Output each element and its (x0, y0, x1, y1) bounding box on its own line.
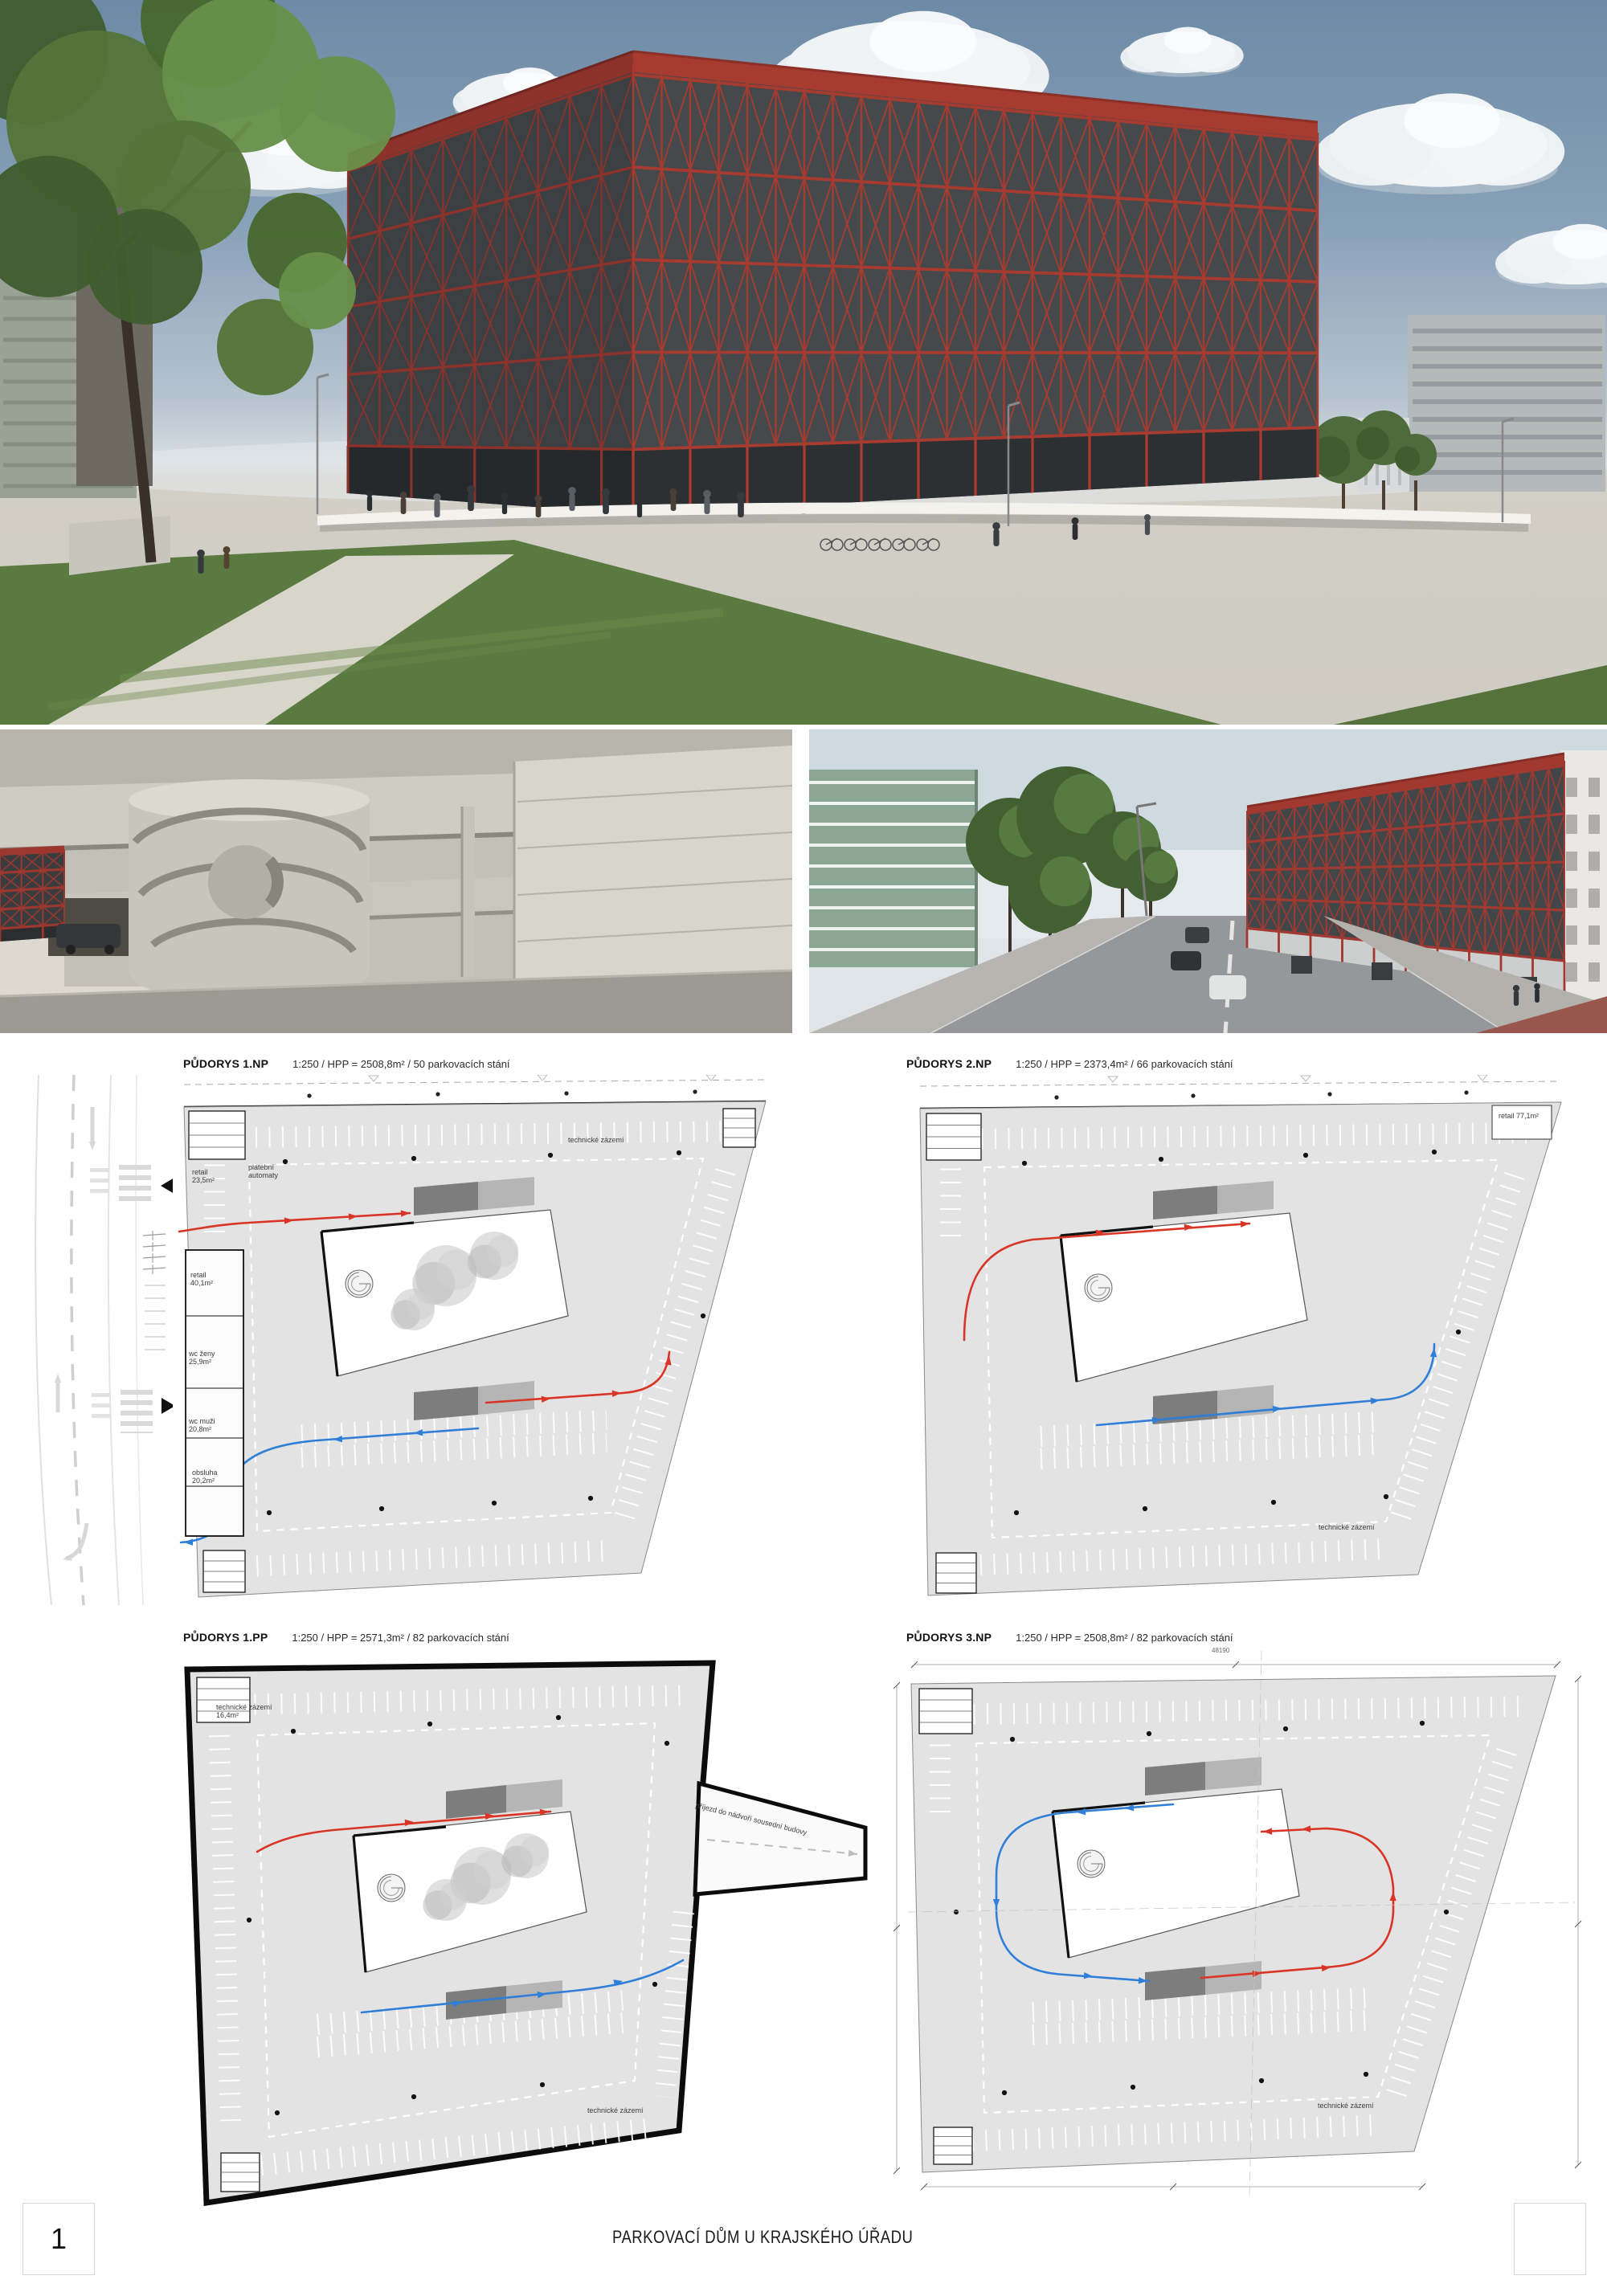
plan-linework (893, 1651, 1581, 2197)
empty-corner-box (1514, 2203, 1586, 2275)
room-label: wc ženy 25,9m² (189, 1350, 237, 1367)
interior-art-shapes (0, 729, 792, 1033)
interior-render (0, 729, 792, 1033)
cloud (1120, 27, 1243, 77)
plan-specs: 1:250 / HPP = 2508,8m² / 82 parkovacích … (1016, 1632, 1233, 1644)
plan-name: PŮDORYS 1.PP (183, 1631, 268, 1644)
room-label: technické zázemí (1319, 1523, 1375, 1531)
plan-drawing-2np (904, 1075, 1575, 1605)
street-render (809, 729, 1607, 1033)
room-label: technické zázemí (568, 1136, 624, 1144)
street-strip-drawing (16, 1075, 173, 1605)
plan-drawing-1pp (173, 1647, 880, 2209)
plan-drawing-3np (884, 1647, 1591, 2201)
plan-title-1pp: PŮDORYS 1.PP 1:250 / HPP = 2571,3m² / 82… (183, 1631, 509, 1644)
plan-linework (187, 1663, 865, 2203)
bicycles (820, 538, 939, 550)
plan-title-1np: PŮDORYS 1.NP 1:250 / HPP = 2508,8m² / 50… (183, 1057, 510, 1070)
plan-specs: 1:250 / HPP = 2508,8m² / 50 parkovacích … (292, 1058, 509, 1070)
plan-linework (920, 1075, 1561, 1595)
hero-art (0, 0, 1607, 725)
room-label: wc muži 20,8m² (189, 1417, 237, 1434)
plan-1pp: technické zázemí 16,4m² příjezd do nádvo… (173, 1647, 880, 2209)
red-lattice-glimpse (0, 847, 64, 942)
dimension-label: 48190 (1212, 1647, 1229, 1654)
plan-specs: 1:250 / HPP = 2571,3m² / 82 parkovacích … (292, 1632, 509, 1644)
cloud (1315, 93, 1564, 194)
plan-name: PŮDORYS 1.NP (183, 1057, 268, 1070)
hero-render (0, 0, 1607, 725)
plan-title-2np: PŮDORYS 2.NP 1:250 / HPP = 2373,4m² / 66… (906, 1057, 1233, 1070)
retail-room (1492, 1105, 1552, 1139)
street-situation-strip (16, 1075, 173, 1605)
room-label: retail 40,1m² (190, 1271, 229, 1288)
plan-3np: 48190 technické zázemí (884, 1647, 1591, 2201)
cloud (1495, 224, 1607, 289)
street-strip-linework (35, 1075, 173, 1605)
plan-name: PŮDORYS 2.NP (906, 1057, 992, 1070)
room-label: retail 77,1m² (1499, 1112, 1540, 1120)
board-title: PARKOVACÍ DŮM U KRAJSKÉHO ÚŘADU (612, 2227, 913, 2248)
plan-name: PŮDORYS 3.NP (906, 1631, 992, 1644)
plan-2np: retail 77,1m² technické zázemí (904, 1075, 1575, 1605)
plan-1np: technické zázemí retail 23,5m² platební … (173, 1075, 771, 1605)
canopy (317, 502, 1531, 532)
green-glass-building (809, 770, 978, 967)
plan-linework (179, 1075, 766, 1597)
street-art (809, 729, 1607, 1033)
page-number-box: 1 (22, 2203, 95, 2275)
parking-house-building (348, 51, 1318, 514)
ground-plaza (0, 516, 1607, 725)
plan-title-3np: PŮDORYS 3.NP 1:250 / HPP = 2508,8m² / 82… (906, 1631, 1233, 1644)
street-art-shapes (809, 729, 1607, 1033)
spiral-ramp (129, 779, 370, 1004)
room-label: technické zázemí (1318, 2102, 1374, 2110)
presentation-board: { "board": { "footer_title": "PARKOVACÍ … (0, 0, 1607, 2296)
room-label: technické zázemí (587, 2106, 644, 2114)
page-number: 1 (51, 2222, 67, 2256)
interior-art (0, 729, 792, 1033)
room-label: retail 23,5m² (192, 1168, 227, 1185)
room-label: platební automaty (248, 1163, 285, 1180)
room-label: obsluha 20,2m² (192, 1469, 237, 1485)
plan-drawing-1np (173, 1075, 771, 1605)
plan-specs: 1:250 / HPP = 2373,4m² / 66 parkovacích … (1016, 1058, 1233, 1070)
room-label: technické zázemí 16,4m² (216, 1703, 272, 1720)
